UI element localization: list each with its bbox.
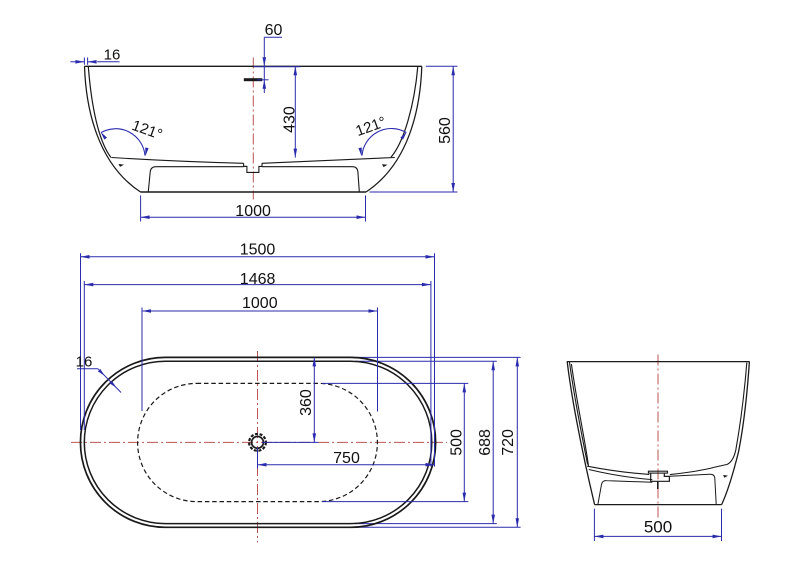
svg-text:1000: 1000: [235, 203, 271, 220]
svg-text:720: 720: [500, 429, 517, 456]
svg-text:1468: 1468: [240, 271, 276, 288]
svg-text:500: 500: [449, 429, 466, 456]
svg-text:430: 430: [282, 106, 299, 133]
svg-text:60: 60: [265, 22, 283, 39]
svg-text:750: 750: [333, 450, 360, 467]
svg-text:16: 16: [104, 47, 121, 64]
svg-text:121°: 121°: [130, 117, 165, 144]
svg-text:16: 16: [76, 354, 93, 371]
svg-text:560: 560: [437, 117, 454, 144]
svg-text:1000: 1000: [242, 295, 278, 312]
svg-text:360: 360: [298, 389, 315, 416]
svg-text:500: 500: [644, 517, 672, 536]
svg-text:1500: 1500: [240, 242, 276, 259]
svg-text:688: 688: [477, 429, 494, 456]
